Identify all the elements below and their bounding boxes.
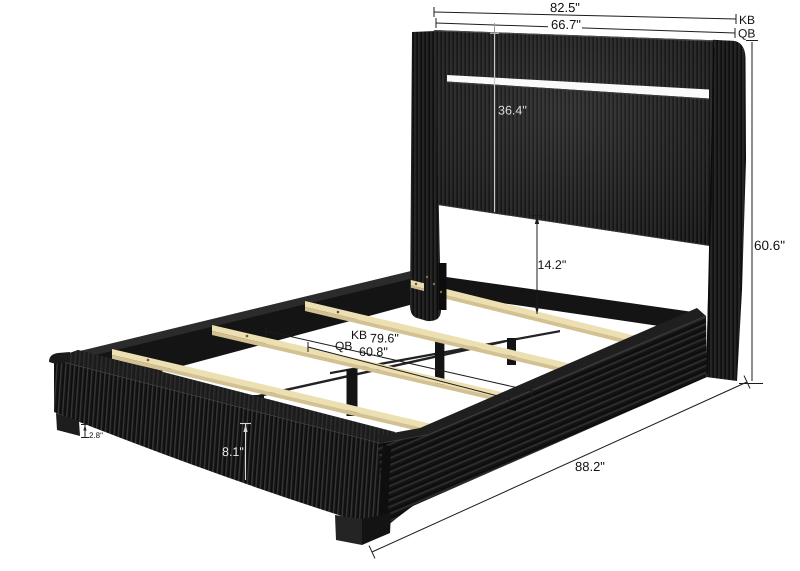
svg-text:KB: KB: [351, 328, 367, 342]
svg-text:14.2": 14.2": [538, 258, 567, 272]
svg-text:88.2": 88.2": [575, 459, 605, 474]
svg-text:36.4": 36.4": [498, 104, 527, 118]
svg-text:66.7": 66.7": [551, 17, 581, 32]
svg-text:60.8": 60.8": [359, 345, 388, 359]
svg-text:60.6": 60.6": [754, 238, 785, 253]
svg-text:79.6": 79.6": [370, 332, 399, 346]
svg-text:QB: QB: [738, 27, 755, 41]
svg-text:8.1": 8.1": [222, 445, 244, 459]
svg-text:2.8": 2.8": [89, 431, 103, 440]
svg-text:KB: KB: [739, 13, 755, 27]
svg-text:QB: QB: [335, 339, 352, 353]
svg-text:82.5": 82.5": [550, 0, 580, 15]
